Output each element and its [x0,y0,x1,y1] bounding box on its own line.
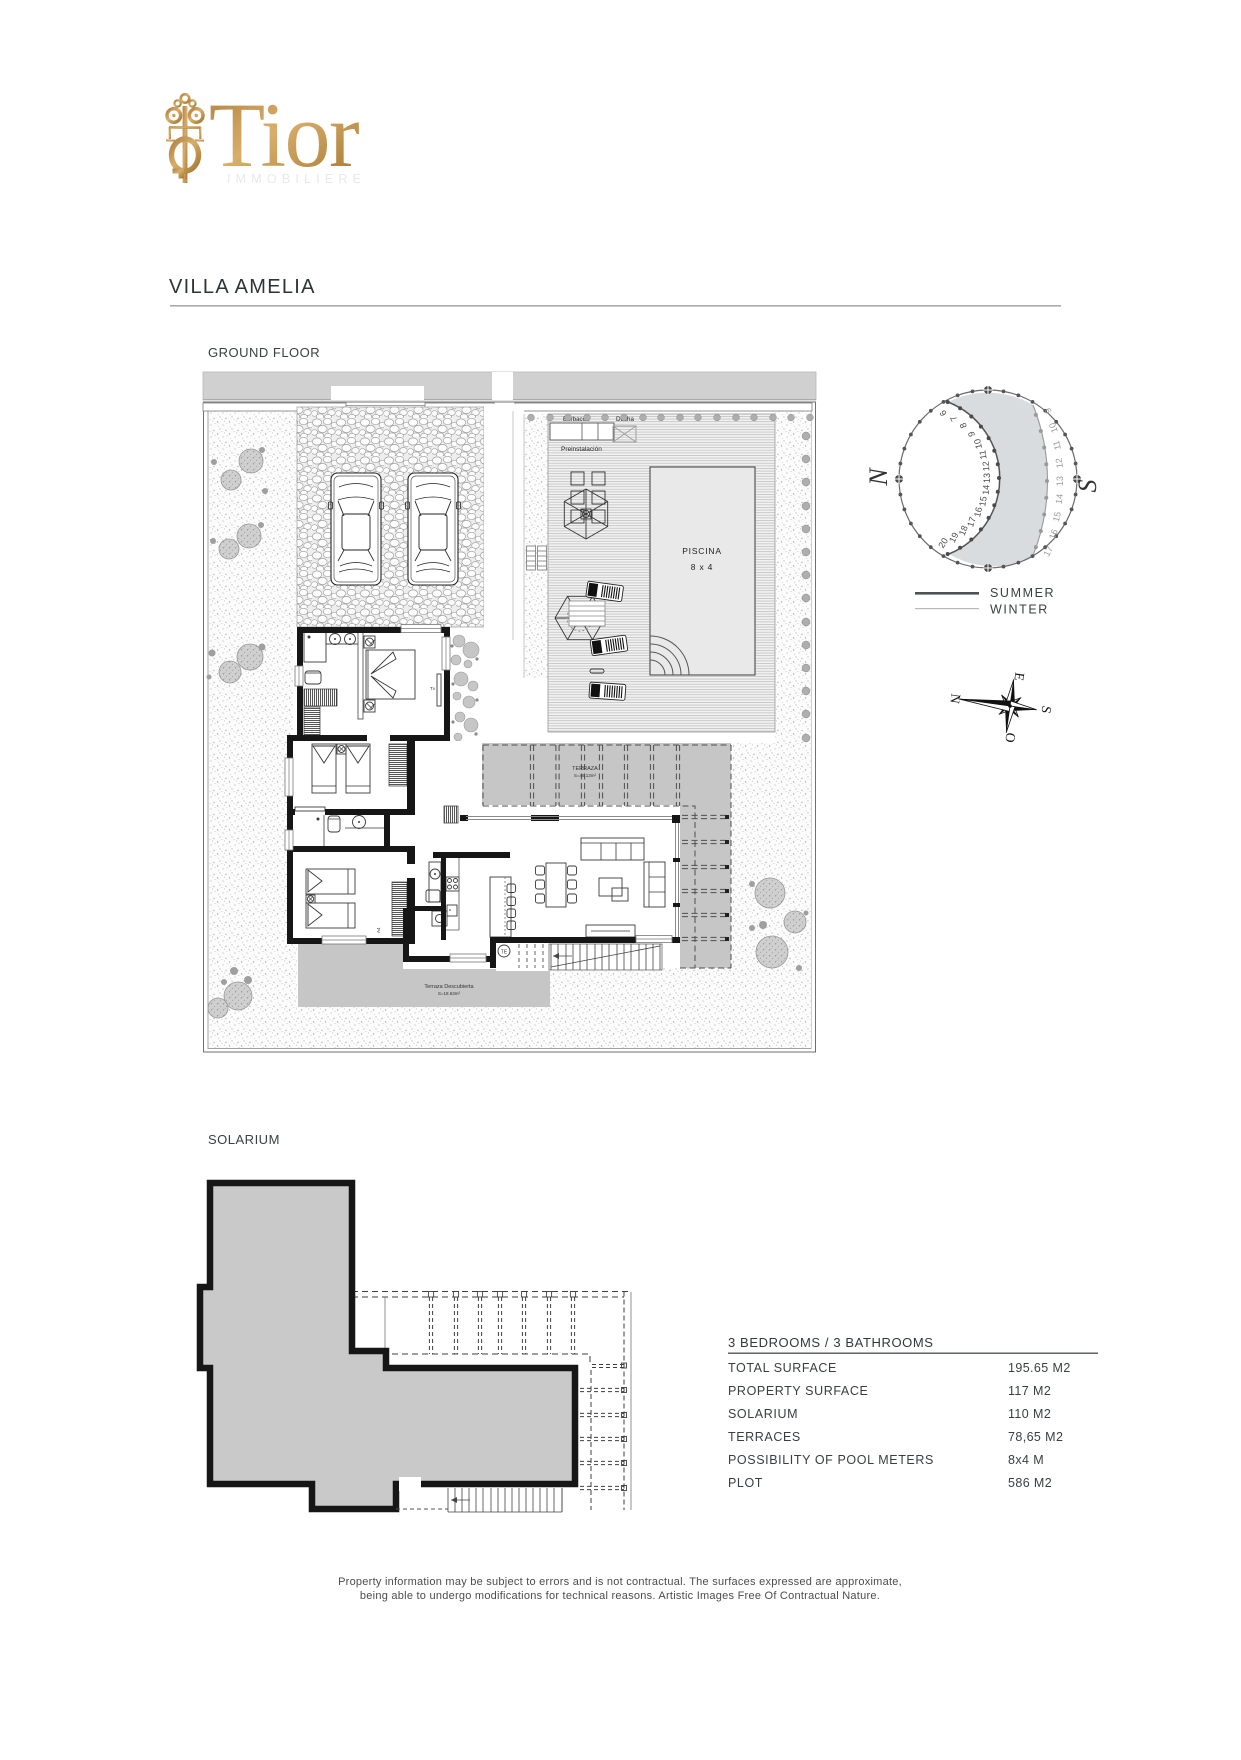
svg-text:PLOT: PLOT [728,1476,763,1490]
svg-text:8x4 M: 8x4 M [1008,1453,1044,1467]
svg-text:110 M2: 110 M2 [1008,1407,1051,1421]
svg-text:PROPERTY SURFACE: PROPERTY SURFACE [728,1384,868,1398]
svg-text:13: 13 [982,473,992,483]
svg-text:9: 9 [1043,406,1054,415]
svg-text:S: S [1073,480,1102,493]
svg-text:586 M2: 586 M2 [1008,1476,1052,1490]
svg-text:GROUND FLOOR: GROUND FLOOR [208,345,320,360]
svg-text:16: 16 [1047,528,1060,541]
svg-text:SUMMER: SUMMER [990,586,1055,600]
svg-text:O: O [1002,732,1018,744]
svg-text:12: 12 [981,461,992,472]
svg-text:PISCINA: PISCINA [682,546,722,556]
svg-text:7: 7 [948,414,959,423]
svg-text:117 M2: 117 M2 [1008,1384,1051,1398]
svg-text:IMMOBILIERE: IMMOBILIERE [227,172,366,186]
svg-text:TE: TE [501,950,508,956]
svg-text:10: 10 [972,438,984,450]
svg-text:Tior: Tior [209,84,359,186]
svg-text:6: 6 [938,408,949,417]
svg-text:S=18.63m²: S=18.63m² [438,991,461,996]
svg-text:15: 15 [1051,511,1063,523]
svg-text:S: S [1038,705,1054,715]
svg-text:N: N [947,693,963,705]
svg-text:3 BEDROOMS / 3 BATHROOMS: 3 BEDROOMS / 3 BATHROOMS [728,1335,934,1350]
svg-text:12: 12 [1054,458,1065,469]
svg-text:POSSIBILITY OF POOL METERS: POSSIBILITY OF POOL METERS [728,1453,934,1467]
svg-text:15: 15 [977,496,988,507]
svg-text:TOTAL SURFACE: TOTAL SURFACE [728,1361,837,1375]
svg-text:195.65 M2: 195.65 M2 [1008,1361,1071,1375]
svg-text:SOLARIUM: SOLARIUM [728,1407,798,1421]
svg-text:TERRAZA: TERRAZA [572,766,598,772]
svg-text:11: 11 [1051,440,1063,451]
svg-text:13: 13 [1055,476,1065,486]
svg-text:14: 14 [981,484,992,495]
svg-text:WINTER: WINTER [990,603,1049,617]
svg-text:9: 9 [966,430,977,438]
svg-text:N: N [864,467,893,487]
svg-text:Property information may be su: Property information may be subject to e… [338,1576,902,1588]
svg-text:SOLARIUM: SOLARIUM [208,1132,280,1147]
svg-text:8 x 4: 8 x 4 [691,562,713,572]
svg-text:14: 14 [1054,493,1065,504]
svg-text:A4: A4 [376,927,381,933]
svg-text:11: 11 [977,449,988,460]
svg-text:VILLA AMELIA: VILLA AMELIA [169,276,316,298]
svg-text:being able to undergo modifica: being able to undergo modifications for … [360,1590,880,1602]
svg-text:16: 16 [972,506,984,518]
svg-text:Terraza Descubierta: Terraza Descubierta [424,984,474,990]
svg-text:S=48.13m²: S=48.13m² [574,773,597,778]
svg-text:78,65 M2: 78,65 M2 [1008,1430,1063,1444]
svg-text:TERRACES: TERRACES [728,1430,801,1444]
svg-text:8: 8 [958,421,969,429]
svg-text:Tv: Tv [430,686,436,691]
svg-text:Preinstalación: Preinstalación [561,446,602,453]
